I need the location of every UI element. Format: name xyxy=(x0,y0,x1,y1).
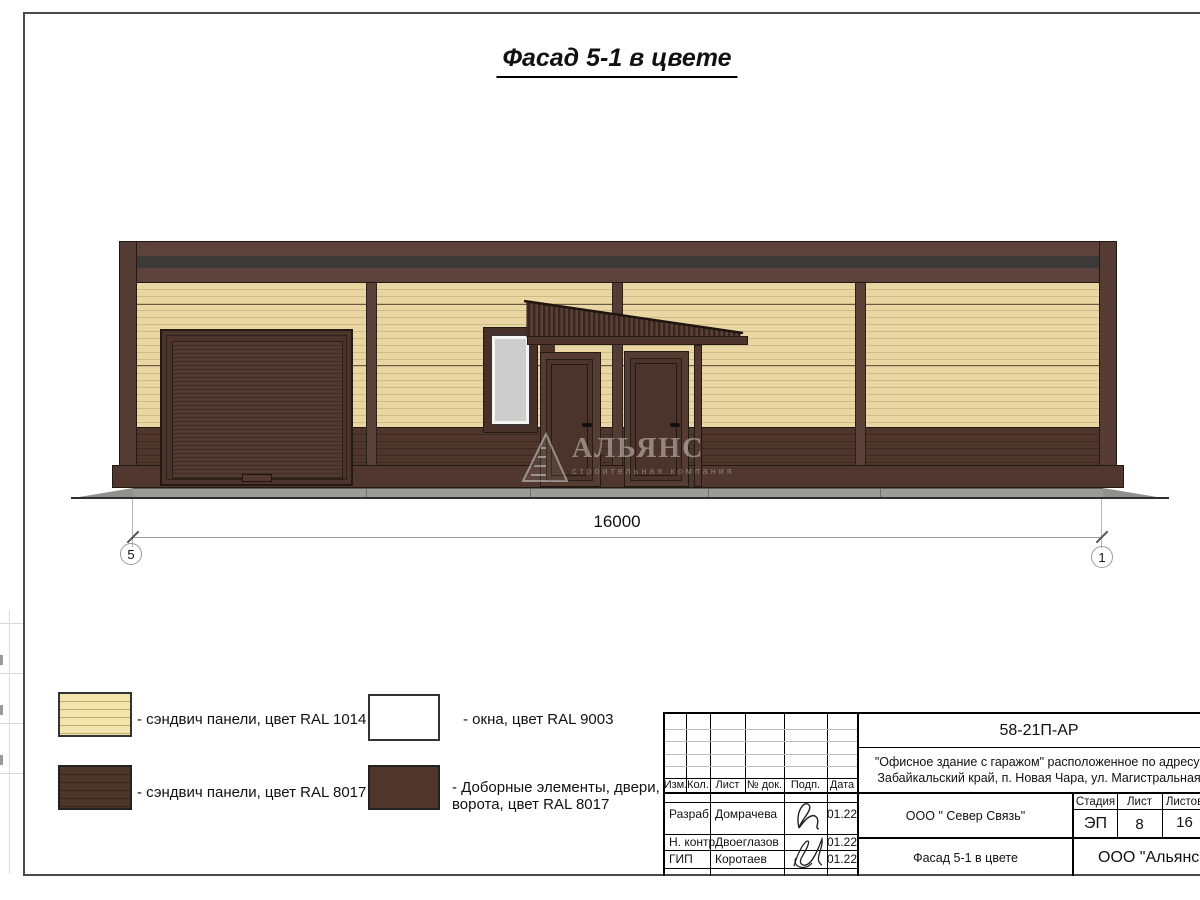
garage-door xyxy=(160,329,353,486)
frame-top xyxy=(23,12,1200,14)
ground-line xyxy=(71,497,1169,499)
margin-text-fragment xyxy=(0,705,3,715)
stamp-sheets-label: Листов xyxy=(1162,794,1200,809)
apron-seam xyxy=(530,489,531,497)
legend-swatch-doors xyxy=(368,765,440,810)
stamp-date: 01.22 xyxy=(827,802,857,826)
stamp-sheet-title: Фасад 5-1 в цвете xyxy=(859,839,1072,876)
stamp-name: Двоеглазов xyxy=(715,835,779,849)
stamp-col-izm: Изм. xyxy=(665,778,686,792)
watermark-logo-icon xyxy=(520,430,570,484)
stamp-sheet-label: Лист xyxy=(1117,794,1162,809)
window-glass xyxy=(495,339,526,421)
stamp-address-line2: Забайкальский край, п. Новая Чара, ул. М… xyxy=(859,770,1200,786)
axis-bubble-5: 5 xyxy=(120,543,142,565)
stamp-sheet-value: 8 xyxy=(1117,811,1162,838)
garage-door-handle xyxy=(242,474,272,482)
stamp-col-podp: Подп. xyxy=(784,778,827,792)
stamp-company: ООО "Альянс" xyxy=(1074,839,1200,876)
margin-line-vertical xyxy=(9,610,10,874)
stamp-line xyxy=(665,766,857,767)
dimension-line xyxy=(133,537,1102,538)
apron-seam xyxy=(880,489,881,497)
corner-pilaster-right xyxy=(1099,241,1117,466)
concrete-apron xyxy=(133,488,1103,497)
dimension-value: 16000 xyxy=(593,512,640,532)
sheet-title: Фасад 5-1 в цвете xyxy=(496,44,737,78)
stamp-col-list: Лист xyxy=(710,778,745,792)
legend-label: - сэндвич панели, цвет RAL 1014 xyxy=(137,711,366,728)
stamp-col-kol: Кол. xyxy=(686,778,710,792)
apron-seam xyxy=(366,489,367,497)
extension-line-left xyxy=(132,499,133,547)
signature-gip xyxy=(789,832,829,874)
extension-line-right xyxy=(1101,499,1102,548)
joint-cover-strip xyxy=(366,283,377,465)
stamp-address-line1: "Офисное здание с гаражом" расположенное… xyxy=(859,754,1200,770)
legend-swatch-ral1014 xyxy=(58,692,132,737)
stamp-name: Коротаев xyxy=(715,852,767,866)
margin-text-fragment xyxy=(0,655,3,665)
signature-razrab xyxy=(793,798,825,834)
joint-cover-strip xyxy=(855,283,866,465)
margin-line xyxy=(0,623,23,624)
stamp-role: ГИП xyxy=(669,852,693,866)
canopy-beam xyxy=(527,336,748,345)
watermark-tagline: строительная компания xyxy=(572,466,688,476)
stamp-line xyxy=(665,741,857,742)
stamp-line xyxy=(857,747,1200,748)
window-sash xyxy=(491,335,530,425)
door-handle xyxy=(670,423,680,427)
stamp-sheets-value: 16 xyxy=(1162,809,1200,836)
stamp-col-doc: № док. xyxy=(745,778,784,792)
stamp-name: Домрачева xyxy=(715,807,777,821)
stamp-date: 01.22 xyxy=(827,850,857,868)
legend-label: - сэндвич панели, цвет RAL 8017 xyxy=(137,784,366,801)
legend-label: - Доборные элементы, двери, ворота, цвет… xyxy=(452,779,677,813)
stamp-line xyxy=(784,714,785,876)
legend-label: - окна, цвет RAL 9003 xyxy=(463,711,613,728)
legend-swatch-windows xyxy=(368,694,440,741)
margin-line xyxy=(0,723,23,724)
frame-left xyxy=(23,12,25,876)
stamp-line xyxy=(665,729,857,730)
title-block: Изм. Кол. Лист № док. Подп. Дата Разраб.… xyxy=(663,712,1200,876)
margin-line xyxy=(0,773,23,774)
legend-swatch-ral8017 xyxy=(58,765,132,810)
stamp-stage-value: ЭП xyxy=(1074,810,1117,837)
door-handle xyxy=(582,423,592,427)
stamp-line xyxy=(710,714,711,876)
margin-text-fragment xyxy=(0,755,3,765)
parapet-dark-stripe xyxy=(133,256,1103,268)
axis-bubble-1: 1 xyxy=(1091,546,1113,568)
stamp-col-data: Дата xyxy=(827,778,857,792)
corner-pilaster-left xyxy=(119,241,137,466)
drawing-sheet: Фасад 5-1 в цвете xyxy=(0,0,1200,900)
stamp-org: ООО " Север Связь" xyxy=(859,794,1072,837)
apron-seam xyxy=(708,489,709,497)
stamp-date: 01.22 xyxy=(827,834,857,850)
stamp-stage-label: Стадия xyxy=(1074,794,1117,809)
stamp-role: Разраб. xyxy=(669,807,712,821)
stamp-role: Н. контр. xyxy=(669,835,719,849)
margin-line xyxy=(0,673,23,674)
garage-door-shutter xyxy=(172,341,343,479)
watermark-name: АЛЬЯНС xyxy=(572,433,688,465)
stamp-line xyxy=(665,754,857,755)
stamp-doc-number: 58-21П-АР xyxy=(859,716,1200,746)
